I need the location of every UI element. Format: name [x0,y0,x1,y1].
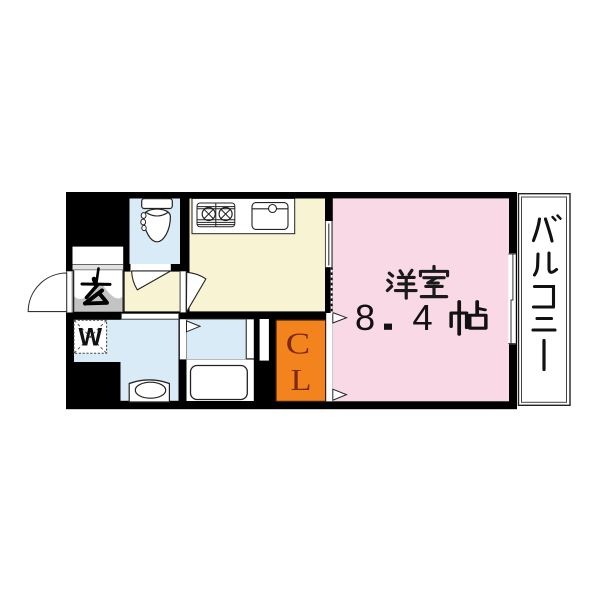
svg-text:W: W [78,324,102,352]
svg-text:C: C [286,327,310,361]
svg-text:8: 8 [355,297,375,338]
svg-text:L: L [291,363,312,397]
svg-text:4: 4 [412,297,432,338]
